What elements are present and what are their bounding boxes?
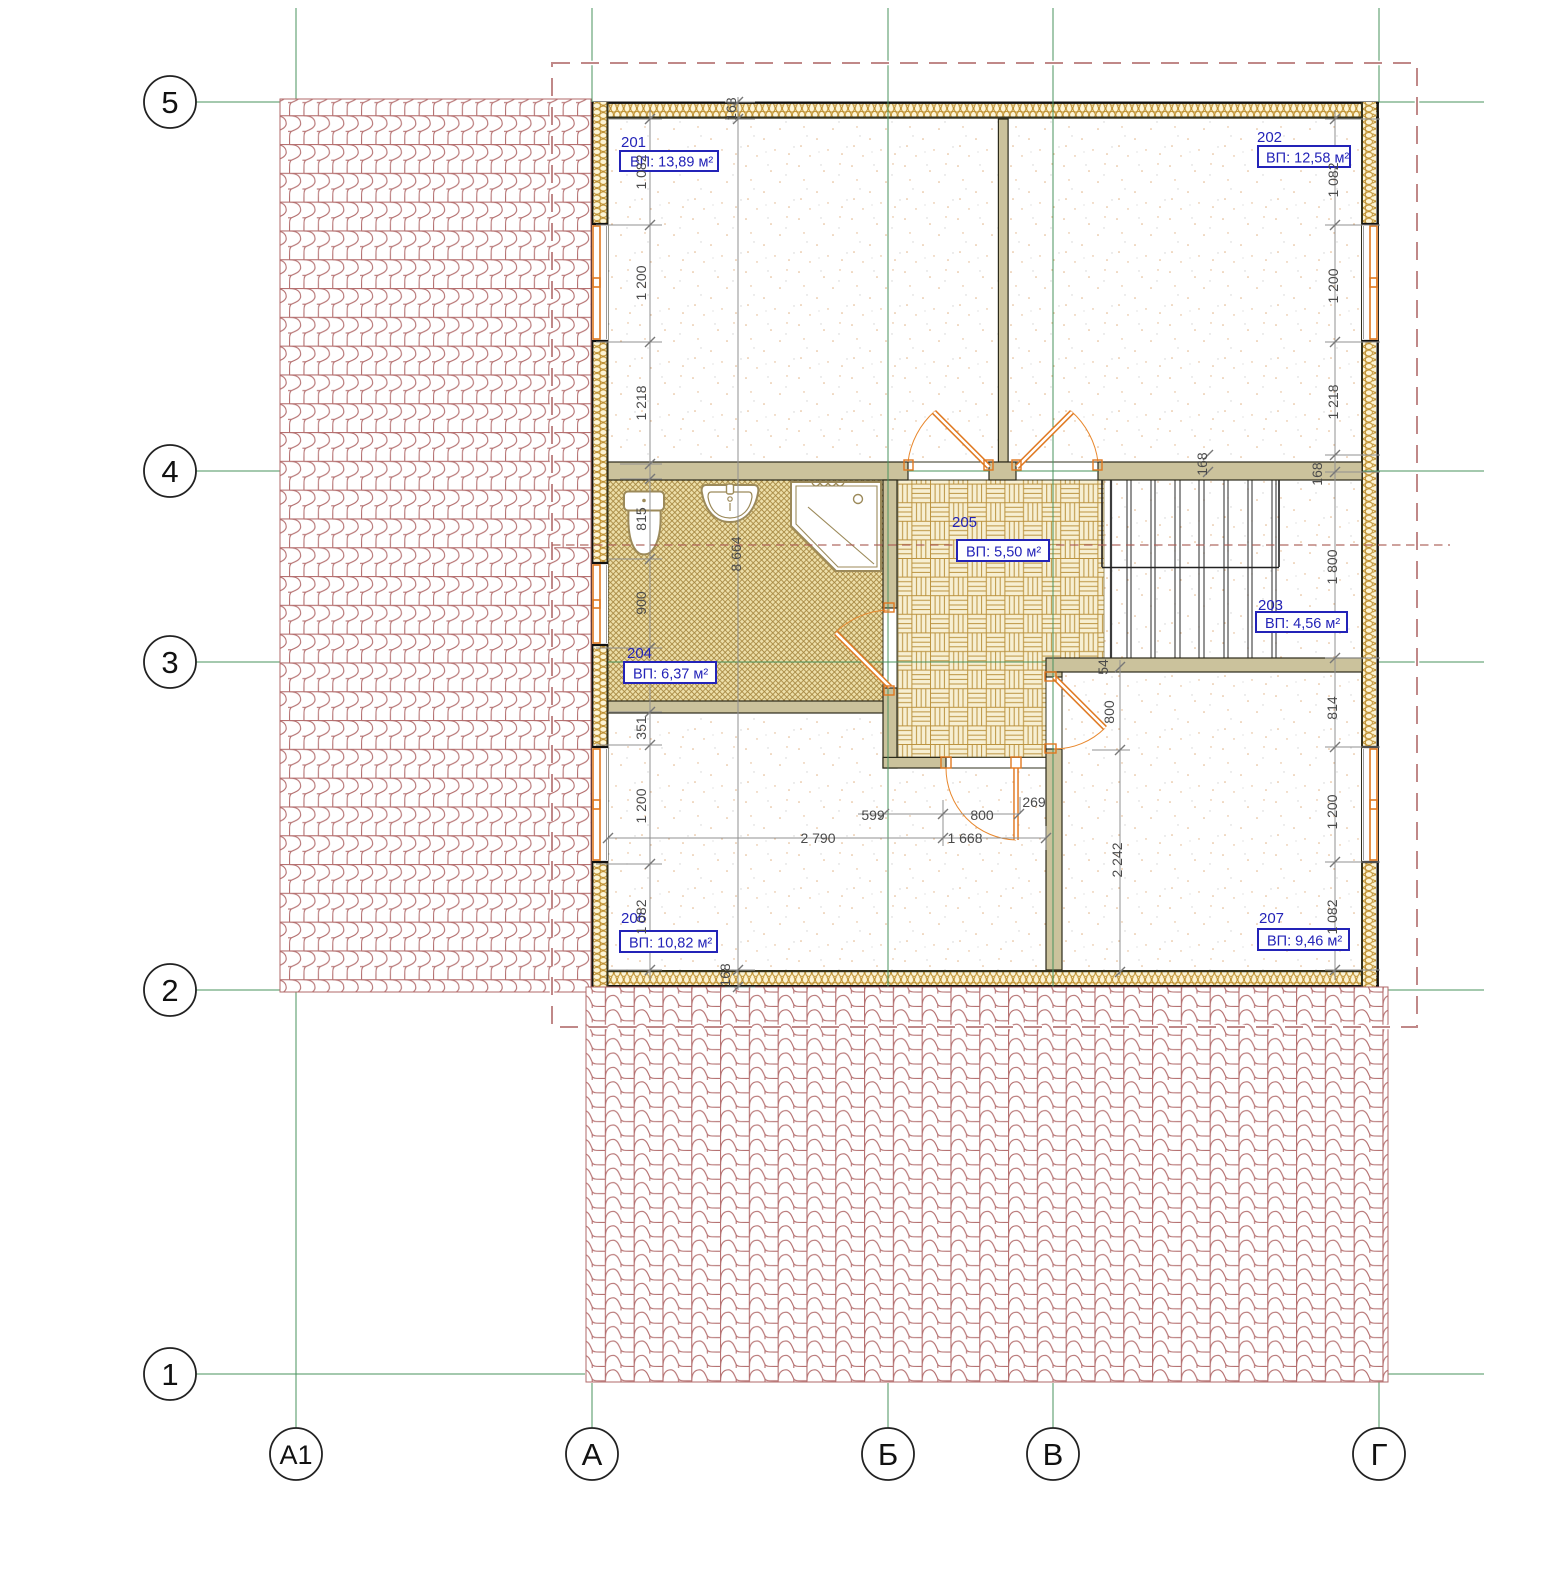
svg-text:168: 168 xyxy=(723,97,739,121)
svg-text:1 082: 1 082 xyxy=(1324,899,1340,934)
svg-text:В: В xyxy=(1043,1437,1064,1472)
svg-text:1 082: 1 082 xyxy=(633,899,649,934)
svg-text:2 790: 2 790 xyxy=(800,830,835,846)
svg-text:8 664: 8 664 xyxy=(728,536,744,571)
svg-text:814: 814 xyxy=(1324,696,1340,720)
svg-text:207: 207 xyxy=(1259,910,1284,927)
svg-text:ВП: 4,56 м²: ВП: 4,56 м² xyxy=(1265,616,1340,632)
svg-text:204: 204 xyxy=(627,645,652,662)
svg-text:ВП: 6,37 м²: ВП: 6,37 м² xyxy=(633,667,708,683)
svg-text:1 200: 1 200 xyxy=(633,265,649,300)
svg-text:1 200: 1 200 xyxy=(1325,268,1341,303)
svg-text:1 200: 1 200 xyxy=(1324,794,1340,829)
svg-text:815: 815 xyxy=(633,507,649,531)
svg-text:5: 5 xyxy=(161,85,178,120)
svg-text:ВП: 10,82 м²: ВП: 10,82 м² xyxy=(629,936,712,952)
svg-text:1 218: 1 218 xyxy=(633,385,649,420)
svg-text:1 668: 1 668 xyxy=(947,830,982,846)
svg-text:2 242: 2 242 xyxy=(1109,842,1125,877)
svg-text:168: 168 xyxy=(1194,452,1210,476)
svg-text:1 200: 1 200 xyxy=(633,788,649,823)
svg-text:1 082: 1 082 xyxy=(633,154,649,189)
svg-text:4: 4 xyxy=(161,454,178,489)
svg-text:800: 800 xyxy=(1101,700,1117,724)
svg-text:201: 201 xyxy=(621,134,646,151)
svg-text:1 082: 1 082 xyxy=(1325,162,1341,197)
svg-text:269: 269 xyxy=(1022,794,1046,810)
svg-text:1: 1 xyxy=(161,1357,178,1392)
svg-text:А1: А1 xyxy=(279,1440,312,1470)
svg-text:900: 900 xyxy=(633,591,649,615)
svg-text:ВП: 9,46 м²: ВП: 9,46 м² xyxy=(1267,934,1342,950)
svg-text:Г: Г xyxy=(1371,1437,1388,1472)
svg-text:800: 800 xyxy=(970,807,994,823)
svg-text:168: 168 xyxy=(1309,462,1325,486)
svg-text:2: 2 xyxy=(161,973,178,1008)
svg-text:1 218: 1 218 xyxy=(1325,384,1341,419)
svg-text:202: 202 xyxy=(1257,129,1282,146)
svg-text:1 800: 1 800 xyxy=(1324,549,1340,584)
svg-text:Б: Б xyxy=(878,1437,898,1472)
svg-text:3: 3 xyxy=(161,645,178,680)
svg-text:599: 599 xyxy=(861,807,885,823)
svg-text:ВП: 5,50 м²: ВП: 5,50 м² xyxy=(966,545,1041,561)
svg-text:168: 168 xyxy=(717,963,733,987)
svg-text:205: 205 xyxy=(952,514,977,531)
svg-text:351: 351 xyxy=(633,716,649,740)
svg-text:54: 54 xyxy=(1095,659,1111,675)
svg-text:А: А xyxy=(582,1437,603,1472)
